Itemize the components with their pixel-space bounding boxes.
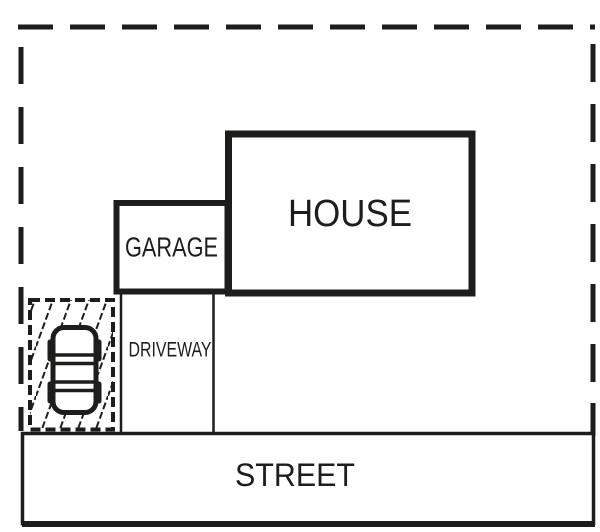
house-label: HOUSE	[288, 193, 412, 235]
street-label: STREET	[235, 457, 355, 493]
site-plan-canvas: HOUSE GARAGE DRIVEWAY STREET	[0, 0, 600, 532]
car-top-view-icon	[48, 328, 102, 413]
garage-label: GARAGE	[125, 232, 218, 263]
site-plan-diagram: HOUSE GARAGE DRIVEWAY STREET	[0, 0, 600, 532]
car-body	[53, 328, 96, 413]
driveway-label: DRIVEWAY	[129, 339, 212, 362]
